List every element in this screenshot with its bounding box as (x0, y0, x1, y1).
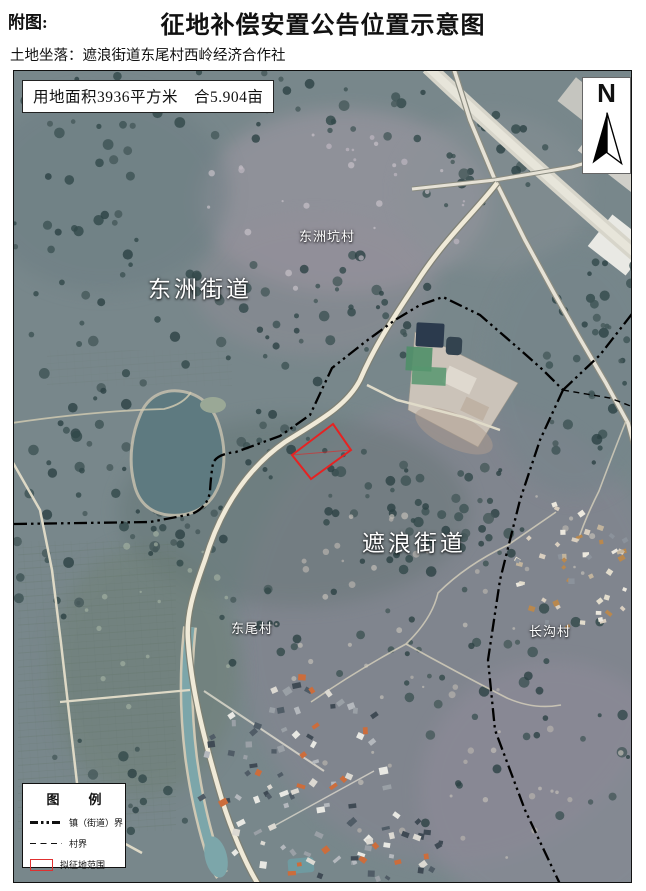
compass-arrow-icon (587, 108, 627, 170)
map-label-changgou-village: 长沟村 (529, 621, 571, 640)
map-label-zhelang-street: 遮浪街道 (362, 524, 466, 558)
legend-title: 图 例 (30, 789, 118, 808)
legend-row-village-boundary: 村界 (30, 837, 118, 850)
map-label-dongzhoukeng-village: 东洲坑村 (299, 226, 355, 245)
area-note-text: 用地面积3936平方米 合5.904亩 (33, 89, 263, 106)
north-letter: N (597, 78, 616, 108)
legend-label: 拟征地范围 (60, 858, 105, 871)
map-label-dongwei-village: 东尾村 (231, 618, 273, 637)
legend-label: 村界 (69, 837, 87, 850)
land-location-label: 土地坐落：遮浪街道东尾村西岭经济合作社 (10, 44, 286, 65)
parcel-outline-sample (30, 859, 53, 871)
satellite-imagery (14, 71, 631, 882)
legend-label: 镇（街道）界 (69, 816, 123, 829)
legend-box: 图 例 镇（街道）界 村界 拟征地范围 (22, 783, 126, 868)
page-title: 征地补偿安置公告位置示意图 (0, 5, 646, 40)
legend-row-town-boundary: 镇（街道）界 (30, 816, 118, 829)
map-label-dongzhou-street: 东洲街道 (148, 270, 252, 304)
town-boundary-line-sample (30, 821, 62, 824)
village-boundary-line-sample (30, 843, 62, 845)
lake-island (200, 397, 226, 413)
map-canvas: 用地面积3936平方米 合5.904亩 N 东洲街道 遮浪街道 东洲坑村 东尾村… (13, 70, 632, 883)
north-arrow: N (582, 77, 631, 174)
area-info-box: 用地面积3936平方米 合5.904亩 (22, 80, 274, 113)
legend-row-parcel: 拟征地范围 (30, 858, 118, 871)
document-page: 附图: 征地补偿安置公告位置示意图 土地坐落：遮浪街道东尾村西岭经济合作社 (0, 0, 646, 891)
pond-dark (415, 322, 444, 347)
